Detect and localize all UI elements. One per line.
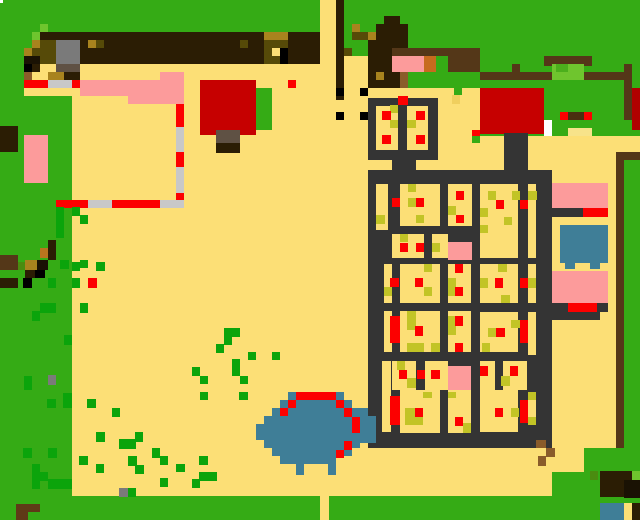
- room-red-dot: [455, 417, 463, 426]
- hall-red-bar: [390, 396, 400, 425]
- room-olive-dot: [416, 215, 424, 223]
- plant-dot: [60, 260, 69, 269]
- east-red-bar: [583, 208, 608, 217]
- stone-dot: [119, 488, 128, 497]
- barn[interactable]: [480, 88, 544, 134]
- stump-debris: [18, 262, 25, 270]
- pink-flower-bed: [160, 72, 184, 104]
- plant-dot: [24, 376, 32, 390]
- room-olive-dot: [390, 105, 398, 113]
- lone-red-item: [88, 278, 97, 288]
- gatehouse-neck: [392, 160, 416, 170]
- east-pink-bed: [552, 183, 608, 208]
- plant-dot: [112, 408, 120, 417]
- blue-table[interactable]: [560, 225, 608, 263]
- white-marker-tile: [544, 120, 552, 136]
- stump-debris: [35, 270, 45, 278]
- pond: [328, 456, 336, 475]
- plant-dot: [135, 432, 143, 442]
- room-red-dot: [399, 370, 407, 379]
- east-dark-bar: [552, 312, 600, 320]
- ne-fence-band: [584, 72, 624, 80]
- plant-dot: [48, 479, 72, 489]
- room-olive-dot: [504, 217, 512, 225]
- tree-olive-fleck: [352, 32, 368, 40]
- blue-table-leg: [565, 263, 575, 269]
- plant-dot: [72, 207, 80, 216]
- room-olive-dot: [488, 328, 496, 337]
- room-red-dot: [417, 370, 425, 379]
- room-olive-dot: [528, 278, 536, 288]
- paddock-fence-south-gray: [88, 200, 112, 208]
- pond: [352, 408, 360, 417]
- plant-dot: [176, 464, 185, 472]
- trunk-gold: [24, 48, 32, 56]
- dorm-hall-d-east: [528, 312, 536, 355]
- paddock-fence-top-red: [24, 80, 48, 88]
- east-sand-pocket: [552, 136, 640, 152]
- stone-dot: [48, 375, 56, 385]
- room-red-dot: [496, 328, 505, 337]
- pond: [296, 464, 304, 475]
- room-olive-dot: [511, 320, 520, 328]
- room-olive-dot: [501, 295, 510, 303]
- se-dark-sliver: [632, 503, 640, 520]
- trunk-gold: [48, 72, 64, 80]
- room-olive-dot: [400, 234, 408, 242]
- trunk-sand: [32, 72, 48, 80]
- paddock-fence-south-red: [112, 200, 160, 208]
- plant-dot: [64, 335, 72, 345]
- trunk-olive: [40, 48, 56, 64]
- lone-tree-mid: [376, 24, 408, 40]
- room-olive-dot: [448, 206, 456, 215]
- room-olive-dot: [424, 287, 432, 296]
- pond-rim: [280, 408, 288, 416]
- critter-red-left: [560, 112, 568, 120]
- stump-debris: [37, 260, 48, 270]
- room-olive-dot: [407, 120, 416, 128]
- plant-dot: [48, 448, 57, 458]
- paddock-fence-top-red: [72, 80, 80, 88]
- well-opening: [272, 48, 280, 56]
- room-olive-dot: [512, 191, 520, 200]
- plant-dot: [119, 439, 136, 449]
- room-olive-dot: [480, 278, 488, 288]
- canopy-olive-fleck: [96, 40, 104, 48]
- plant-dot: [152, 448, 160, 458]
- house-garden-plot: [256, 88, 272, 130]
- room-olive-dot: [408, 184, 416, 192]
- room-olive-dot: [511, 408, 519, 417]
- doorway-red-item: [520, 278, 528, 288]
- room-red-dot: [495, 408, 503, 417]
- stump-debris: [0, 278, 18, 288]
- blue-table-leg: [590, 263, 600, 269]
- house-door-top[interactable]: [216, 130, 240, 143]
- room-olive-dot: [501, 376, 510, 386]
- plant-dot: [160, 456, 168, 465]
- canopy-gold-fleck: [88, 40, 96, 48]
- trunk-dark: [64, 72, 80, 80]
- pond-rim: [336, 400, 344, 408]
- path-stone: [538, 456, 546, 466]
- plant-dot: [192, 367, 200, 376]
- bush-core: [556, 64, 568, 72]
- room-olive-dot: [528, 191, 537, 200]
- room-red-dot: [416, 111, 425, 120]
- plant-dot: [239, 392, 248, 400]
- canopy-olive-fleck: [240, 40, 248, 48]
- origin-marker: [0, 0, 3, 3]
- plant-dot: [216, 344, 224, 353]
- hall-red-bar: [520, 320, 528, 343]
- stump-debris: [48, 240, 56, 260]
- se-black-corner: [624, 480, 640, 498]
- path-stone: [546, 448, 555, 457]
- ne-fence-band: [480, 72, 552, 80]
- critter-body: [568, 112, 584, 120]
- room-red-dot: [456, 191, 464, 200]
- plant-dot: [135, 465, 144, 474]
- paddock-fence-east-gray: [176, 167, 184, 193]
- east-red-bar: [568, 303, 597, 312]
- house-door-bottom: [216, 143, 240, 153]
- doorway-red-item: [390, 278, 399, 287]
- red-item-dot: [288, 80, 296, 88]
- room-olive-dot: [407, 378, 416, 388]
- room-red-dot: [495, 278, 503, 288]
- room-red-dot: [415, 326, 423, 336]
- east-dark-bar: [597, 303, 608, 312]
- tree-gold-fleck: [352, 24, 360, 32]
- plant-dot: [199, 472, 217, 481]
- orange-crate: [424, 56, 436, 72]
- plant-dot: [32, 311, 40, 321]
- hall-red-bar: [520, 400, 528, 423]
- paddock-fence-top-gray: [48, 80, 72, 88]
- east-dark-bar: [552, 208, 583, 217]
- room-olive-dot: [528, 417, 536, 425]
- room-red-dot: [480, 366, 488, 376]
- paddock-fence-east-gray: [176, 127, 184, 152]
- sand-step: [452, 95, 460, 104]
- hall-red-bar: [390, 316, 400, 343]
- plant-dot: [160, 478, 168, 487]
- plant-dot: [224, 337, 232, 345]
- plant-dot: [39, 472, 48, 481]
- east-brown-wall: [616, 152, 624, 448]
- light-leaf: [40, 24, 48, 32]
- plant-dot: [23, 448, 32, 458]
- path-stone: [536, 440, 546, 448]
- north-fence-bar: [392, 48, 448, 56]
- tree-gold-fleck: [376, 72, 384, 80]
- plant-dot: [96, 464, 104, 473]
- plant-dot: [80, 303, 88, 313]
- room-red-dot: [382, 111, 391, 120]
- se-water-square: [600, 503, 624, 520]
- room-olive-dot: [390, 120, 398, 128]
- pond: [344, 400, 352, 408]
- room-olive-dot: [424, 264, 432, 272]
- plant-dot: [224, 328, 240, 337]
- room-red-dot: [400, 243, 408, 252]
- room-red-dot: [455, 264, 463, 273]
- dorm-bed-pink: [448, 366, 471, 390]
- north-path-hedge: [336, 0, 344, 100]
- room-red-dot: [496, 200, 504, 209]
- room-red-dot: [510, 366, 518, 376]
- room-olive-dot: [528, 392, 536, 400]
- room-olive-dot: [488, 191, 496, 200]
- trunk-olive: [40, 40, 56, 48]
- pond: [360, 417, 376, 443]
- room-red-dot: [456, 215, 464, 223]
- pond-rim: [296, 392, 336, 400]
- plant-dot: [128, 488, 136, 497]
- plant-dot: [87, 399, 96, 408]
- pond-rim: [352, 417, 360, 433]
- top-grass-band: [0, 0, 320, 32]
- plant-dot: [47, 399, 56, 408]
- room-olive-dot: [408, 198, 416, 207]
- room-red-dot: [416, 198, 424, 207]
- plant-dot: [72, 262, 80, 271]
- doorway-red-item: [520, 200, 528, 209]
- grass-fleck: [454, 88, 462, 95]
- room-red-dot: [416, 243, 424, 252]
- plant-dot: [40, 303, 56, 313]
- paddock-fence-east-red: [176, 104, 184, 127]
- room-red-dot: [415, 278, 423, 287]
- plant-dot: [48, 278, 56, 288]
- red-roof-house[interactable]: [200, 80, 256, 135]
- pink-flower-bed-west: [24, 135, 48, 183]
- pink-flower-bed: [80, 80, 160, 96]
- pond-rim: [344, 441, 352, 450]
- east-dark-bar: [552, 303, 568, 312]
- well-body: [264, 40, 288, 48]
- barn-walkway: [504, 133, 528, 170]
- plant-dot: [200, 392, 208, 400]
- stump-debris: [0, 255, 18, 270]
- trunk-dark: [32, 64, 40, 72]
- bench: [16, 504, 40, 512]
- tree-sand-pocket: [344, 56, 368, 88]
- plant-dot: [240, 376, 248, 384]
- pink-flower-bed: [128, 96, 160, 104]
- bench: [16, 512, 28, 520]
- small-green-marker: [472, 136, 480, 143]
- room-red-dot: [415, 408, 423, 417]
- south-path-notch: [320, 496, 329, 520]
- room-olive-dot: [384, 287, 392, 296]
- pink-bed-north: [392, 56, 424, 72]
- black-post: [336, 112, 344, 120]
- pond-rim: [344, 408, 352, 417]
- plant-dot: [96, 262, 105, 271]
- se-sand-sliver: [624, 503, 632, 520]
- stone-block: [56, 40, 80, 64]
- well-shadow: [280, 48, 288, 64]
- room-olive-dot: [498, 264, 507, 272]
- dark-stump-block: [0, 126, 18, 152]
- tree-gold-fleck: [368, 32, 376, 40]
- stump-debris: [23, 278, 32, 288]
- se-light-leaf: [632, 471, 640, 480]
- doorway-red-item: [392, 198, 400, 207]
- trunk-gold: [32, 40, 40, 48]
- se-sand-patch: [552, 448, 584, 472]
- game-map-viewport[interactable]: [0, 0, 640, 520]
- room-red-dot: [455, 316, 463, 326]
- ne-fence-nub: [512, 64, 520, 72]
- east-pink-bed: [552, 271, 608, 303]
- trunk-shadow: [24, 64, 32, 72]
- trunk-shadow: [24, 56, 40, 64]
- room-red-dot: [416, 135, 425, 144]
- plant-dot: [248, 352, 256, 360]
- critter-red-right: [584, 112, 592, 120]
- room-olive-dot: [431, 343, 440, 352]
- tree-olive-fleck: [344, 48, 352, 56]
- well-roof[interactable]: [264, 32, 288, 40]
- stump-debris: [40, 248, 48, 258]
- room-red-dot: [382, 135, 391, 144]
- paddock-fence-east-red: [176, 152, 184, 167]
- room-olive-dot: [463, 423, 471, 433]
- room-red-dot: [431, 370, 440, 379]
- right-edge-grass: [624, 160, 640, 448]
- trunk-sand: [40, 64, 56, 72]
- trunk-olive: [32, 48, 40, 56]
- plant-dot: [192, 479, 200, 488]
- map-edge-red-strip: [632, 88, 640, 130]
- room-olive-dot: [432, 243, 440, 252]
- plant-dot: [232, 359, 240, 376]
- plant-dot: [80, 215, 88, 224]
- stone-base: [56, 64, 80, 72]
- room-olive-dot: [423, 392, 432, 398]
- plant-dot: [96, 432, 105, 442]
- room-olive-dot: [480, 208, 488, 217]
- room-olive-dot: [376, 215, 385, 224]
- plant-dot: [63, 393, 72, 408]
- black-post: [360, 112, 368, 120]
- plant-dot: [79, 456, 88, 465]
- plant-dot: [56, 207, 64, 238]
- light-leaf: [32, 32, 40, 40]
- paddock-fence-south-gray: [160, 200, 184, 208]
- plant-dot: [199, 456, 208, 465]
- se-moss-dot: [590, 471, 598, 480]
- fence-sand-strip: [24, 88, 80, 96]
- dorm-bed-pink: [448, 242, 472, 260]
- room-red-dot: [455, 287, 463, 296]
- north-fence-block: [448, 48, 480, 72]
- pond-rim: [336, 450, 344, 458]
- room-olive-dot: [397, 361, 405, 370]
- room-olive-dot: [480, 225, 488, 233]
- room-olive-dot: [448, 392, 456, 398]
- plant-dot: [72, 278, 80, 288]
- plant-dot: [80, 260, 88, 268]
- plant-dot: [272, 352, 280, 360]
- room-olive-dot: [482, 343, 490, 352]
- trunk-brown: [24, 72, 32, 80]
- gatehouse-roof-marker: [398, 96, 408, 105]
- black-post: [360, 88, 368, 96]
- plant-dot: [200, 376, 208, 384]
- pond-rim: [288, 400, 296, 408]
- room-olive-dot: [407, 343, 424, 352]
- room-red-dot: [455, 343, 463, 352]
- black-post: [336, 88, 344, 96]
